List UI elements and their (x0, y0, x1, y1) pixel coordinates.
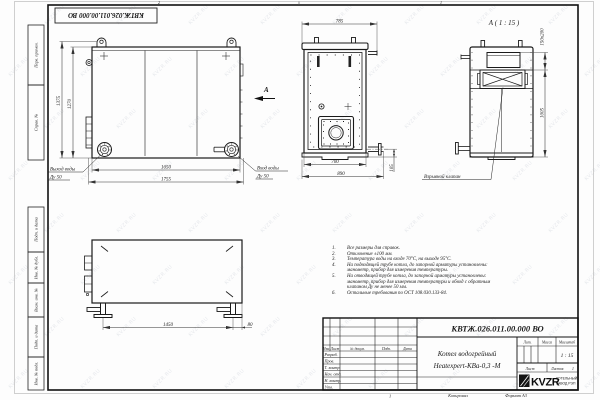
detail-top-pipe (461, 55, 470, 60)
dim-890: 890 (337, 172, 345, 177)
lifting-lug-right (227, 38, 236, 47)
drawing-sheet: KVZR.RUKVZR.RUKVZR.RUKVZR.RUKVZR.RUKVZR.… (0, 0, 600, 400)
row-razrab: Разраб. (324, 352, 338, 357)
outlet-label: Выход воды Ду 50 (49, 156, 101, 181)
side-flange-small (86, 60, 92, 66)
lit-label: Лит. (522, 341, 531, 345)
margin-label-podp-data-2: Подп. и дата (34, 325, 39, 351)
margin-label-podp-data-1: Подп. и дата (34, 217, 39, 243)
product-name-line2: Heatexpert-КВа-0,3 -М (433, 362, 502, 370)
front-view: 785 700 890 105 (302, 20, 397, 180)
valve-hood (487, 53, 520, 68)
zone-mark-top-right: 1 (440, 0, 442, 5)
dim-785: 785 (336, 20, 344, 25)
base-plate (302, 153, 368, 160)
explosion-valve (478, 70, 528, 89)
detail-bottom-pipe (456, 143, 471, 155)
dim-80: 80 (248, 323, 254, 328)
copied-label: Копировал (447, 393, 468, 398)
kvzr-logo: KVZR КОТЕЛЬНЫЙ ЗАВОД РЭП (519, 375, 578, 389)
logo-caption-line1: КОТЕЛЬНЫЙ (556, 377, 578, 381)
left-bracket-detail (85, 256, 93, 296)
section-arrow-a: А (254, 86, 275, 101)
row-tkontr: Т. контр. (325, 365, 341, 370)
dim-700: 700 (331, 160, 339, 165)
margin-label-sprav: Справ. № (34, 114, 39, 131)
listov-label: Листов (550, 367, 564, 371)
bolt-dots (311, 55, 360, 147)
logo-caption-line2: ЗАВОД РЭП (556, 382, 576, 386)
drawing-linework: 2 1 1 Перв. примен. Справ. № Подп. и дат… (0, 0, 600, 400)
note-text: Остальные требования по ОСТ 108.030.133-… (347, 291, 556, 297)
dim-1005: 1005 (541, 108, 546, 119)
row-nkontr: Н. контр. (324, 378, 342, 383)
dim-1375: 1375 (57, 96, 62, 107)
corner-marks (101, 246, 233, 297)
zone-mark-top-left: 2 (158, 0, 160, 5)
dim-150x200: 150x200 (541, 28, 546, 46)
inlet-label: Вход воды Ду 50 (238, 156, 288, 180)
technical-notes: 1.Все размеры для справок. 2.Отклонение … (330, 246, 556, 296)
left-margin-labels: Перв. примен. Справ. № Подп. и дата Инв.… (34, 42, 39, 386)
row-nachotd: Нач. отд. (324, 372, 342, 377)
lifting-lug-left (97, 38, 106, 47)
dim-1450: 1450 (163, 323, 174, 328)
crosshair-marks (100, 52, 230, 60)
col-data: Дата (402, 347, 412, 351)
col-list: Лист (330, 347, 340, 351)
margin-label-inv-podl: Инв. № подл. (34, 362, 39, 387)
support-legs (87, 303, 242, 318)
listov-value: 1 (572, 367, 574, 371)
title-block: КВТЖ.026.011.00.000 ВО Котел водогрейный… (322, 318, 578, 398)
slot-right (349, 56, 352, 67)
callout-text: Взрывной клапан (424, 174, 461, 180)
doc-number: КВТЖ.026.011.00.000 ВО (450, 324, 543, 334)
top-pipe (368, 51, 377, 56)
section-mark-text: А (263, 86, 269, 94)
note-line: 6.Остальные требования по ОСТ 108.030.13… (330, 291, 556, 297)
dim-1755: 1755 (161, 177, 172, 182)
margin-label-vzam-inv: Взам. инв. № (34, 288, 39, 312)
burner-flange (319, 117, 354, 150)
margin-label-inv-dubl: Инв. № дубл. (34, 256, 39, 280)
ladder-bracket (86, 117, 92, 148)
top-rotated-stamp: КВТЖ.026.011.00.000 ВО (55, 8, 157, 23)
col-podp: Подп. (381, 347, 391, 351)
product-name-line1: Котел водогрейный (437, 350, 497, 358)
dim-1650: 1650 (161, 165, 172, 170)
row-utv: Утв. (325, 385, 334, 390)
list-label: Лист (525, 367, 535, 371)
bottom-view: 1450 80 (85, 240, 254, 330)
inlet-flange (214, 143, 239, 157)
scale-value: 1 : 15 (561, 353, 574, 359)
margin-label-perv-primen: Перв. примен. (34, 42, 39, 68)
format-label: Формат А3 (505, 393, 528, 398)
extension-lines (60, 42, 244, 185)
note-number: 6. (330, 291, 347, 297)
col-izm: Изм. (322, 347, 330, 351)
detail-view-a: А ( 1 : 15 ) (422, 19, 548, 180)
massa-label: Масса (541, 341, 552, 345)
dim-105: 105 (390, 164, 395, 172)
dim-1270: 1270 (68, 99, 73, 110)
detail-title: А ( 1 : 15 ) (488, 19, 520, 27)
masshtab-label: Масштаб (558, 341, 576, 345)
explosion-valve-callout: Взрывной клапан (422, 88, 503, 181)
slot-left (317, 56, 320, 67)
doc-number-rotated: КВТЖ.026.011.00.000 ВО (68, 11, 145, 19)
col-doc: № докум. (349, 347, 365, 351)
side-view: 1375 1270 1650 1755 Выход воды Ду 50 Вхо… (49, 38, 289, 185)
zone-mark-bottom: 1 (389, 394, 391, 399)
outlet-flange (98, 143, 112, 157)
row-prov: Пров. (324, 359, 335, 364)
